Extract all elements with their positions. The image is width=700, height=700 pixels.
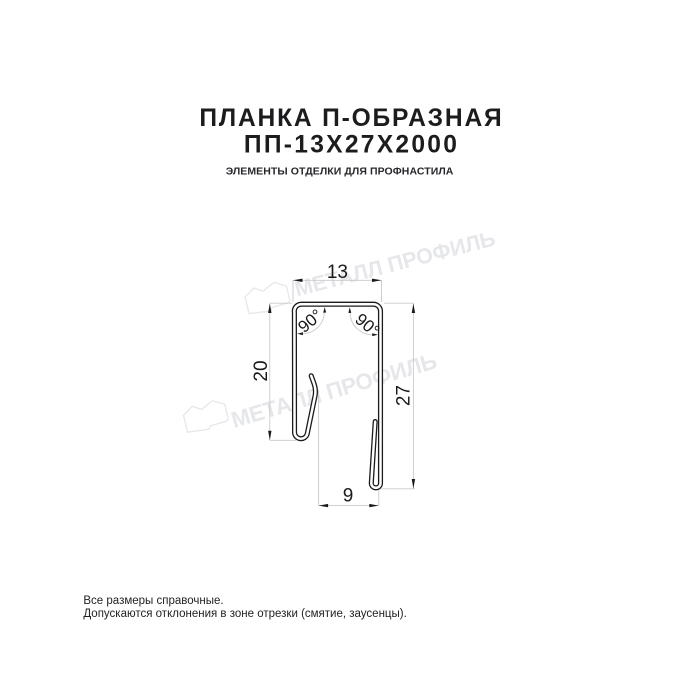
svg-text:ЭЛЕМЕНТЫ ОТДЕЛКИ ДЛЯ ПРОФНАСТИ: ЭЛЕМЕНТЫ ОТДЕЛКИ ДЛЯ ПРОФНАСТИЛА [226,166,454,178]
svg-text:Все размеры справочные.: Все размеры справочные. [83,595,223,607]
svg-text:МЕТАЛЛ ПРОФИЛЬ: МЕТАЛЛ ПРОФИЛЬ [292,226,498,301]
svg-text:27: 27 [394,385,415,406]
svg-text:13: 13 [327,262,348,283]
svg-text:ПЛАНКА П-ОБРАЗНАЯ: ПЛАНКА П-ОБРАЗНАЯ [199,105,501,132]
svg-text:20: 20 [251,360,272,381]
svg-text:9: 9 [343,486,354,507]
svg-text:ПП-13Х27Х2000: ПП-13Х27Х2000 [244,131,457,158]
svg-text:Допускаются отклонения в зоне: Допускаются отклонения в зоне отрезки (с… [83,608,406,620]
svg-text:90°: 90° [294,306,326,337]
